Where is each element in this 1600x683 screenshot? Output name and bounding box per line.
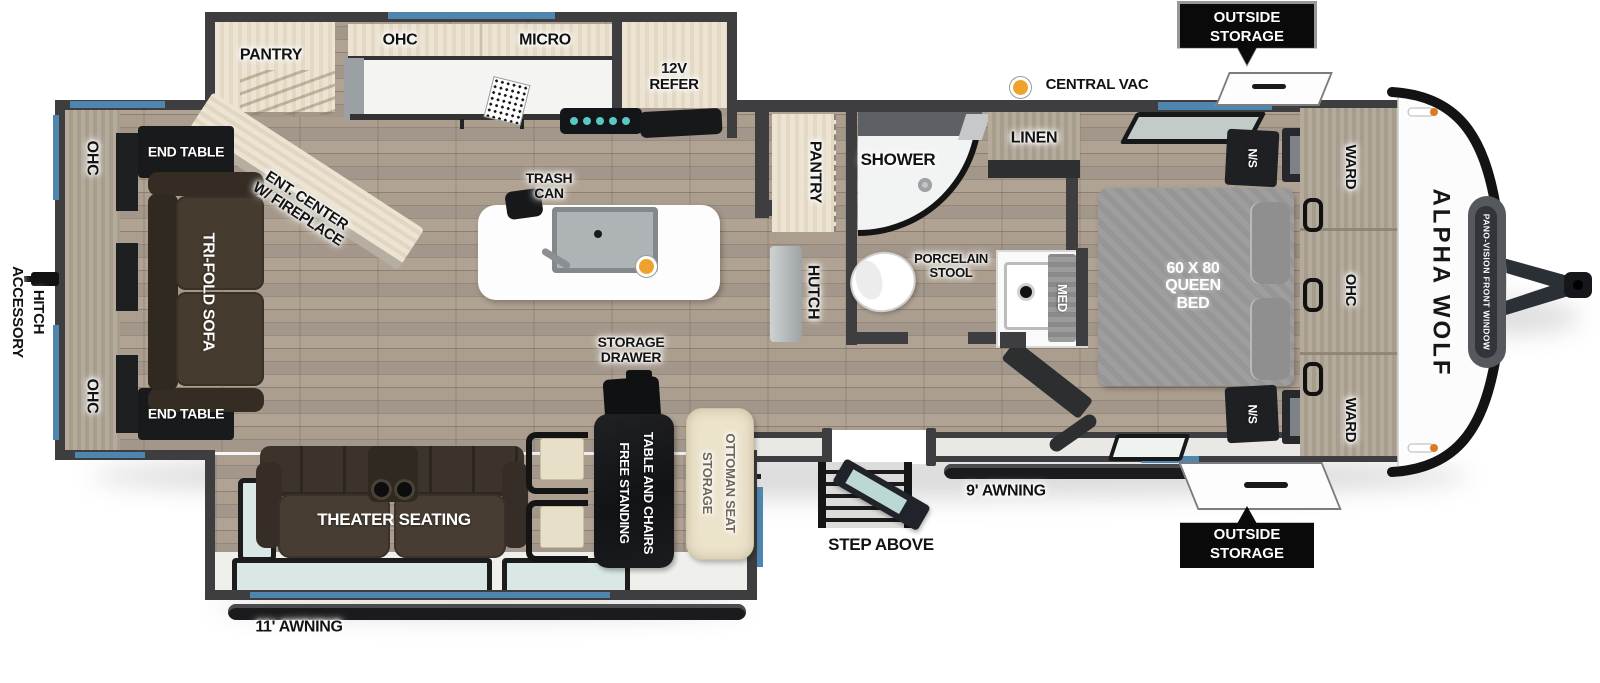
label-hutch: HUTCH xyxy=(804,265,821,320)
label-refer-line1: 12V xyxy=(649,61,698,77)
outside-storage-door-rear-handle xyxy=(1244,482,1288,488)
label-end-table-upper: END TABLE xyxy=(148,144,224,159)
cabinet-seam xyxy=(480,24,482,58)
cupholder-2 xyxy=(397,482,412,497)
outside-storage-badge-front: OUTSIDE STORAGE xyxy=(1180,4,1314,65)
marker-light-bottom-lens xyxy=(1430,444,1438,452)
island-sink-drain xyxy=(594,230,602,238)
label-ward-upper: WARD xyxy=(1342,145,1358,190)
outside-storage-badge-rear: OUTSIDE STORAGE xyxy=(1180,506,1314,568)
badge-rear-line2: STORAGE xyxy=(1180,545,1314,564)
label-bed-line2: QUEEN xyxy=(1165,277,1220,294)
central-vac-marker xyxy=(1010,77,1031,98)
outside-storage-door-front-handle xyxy=(1252,84,1286,89)
label-kitchen-pantry: PANTRY xyxy=(240,46,302,63)
cupholder-1 xyxy=(374,482,389,497)
label-shower: SHOWER xyxy=(861,151,936,169)
rear-cabinet-recess-2 xyxy=(116,243,138,311)
dinette-chair-1-seat xyxy=(540,438,584,480)
ward-handle-2 xyxy=(1303,278,1323,312)
sofa-armrest-top xyxy=(148,172,264,196)
burner-1 xyxy=(570,117,578,125)
label-kitchen-ohc: OHC xyxy=(383,31,418,48)
storage-ottoman xyxy=(686,408,754,560)
bedroom-door-jamb xyxy=(1000,332,1026,348)
burner-4 xyxy=(609,117,617,125)
rear-wall-window xyxy=(53,115,59,200)
label-theater-seating: THEATER SEATING xyxy=(317,511,471,529)
label-refer-line2: REFER xyxy=(649,77,698,93)
dinette-chair-2-seat xyxy=(540,506,584,548)
label-ns-upper: N/S xyxy=(1246,148,1259,167)
bottom-wall-left-window xyxy=(75,452,145,458)
label-accessory-hitch-2: HITCH xyxy=(30,290,46,334)
label-refer: 12V REFER xyxy=(649,61,698,93)
storage-drawer-tab xyxy=(626,370,652,380)
label-central-vac: CENTRAL VAC xyxy=(1046,77,1149,93)
label-ottoman-line1: STORAGE xyxy=(700,452,714,514)
label-hall-pantry: PANTRY xyxy=(806,141,823,203)
label-ottoman-line2: OTTOMAN SEAT xyxy=(723,433,737,532)
label-linen: LINEN xyxy=(1011,129,1058,146)
bath-bottom-wall-left xyxy=(846,332,908,344)
rear-wall-window-2 xyxy=(53,325,59,440)
linen-shelf-shadow xyxy=(988,160,1080,178)
badge-rear-line1: OUTSIDE xyxy=(1180,526,1314,545)
sofa-cushion-2 xyxy=(176,292,264,386)
burner-2 xyxy=(583,117,591,125)
label-trash-can: TRASH CAN xyxy=(526,171,573,201)
hutch xyxy=(770,246,802,342)
theater-slide-left-wall xyxy=(205,450,215,600)
hitch-a-frame xyxy=(1496,256,1572,318)
bottom-wall-window xyxy=(1108,434,1191,461)
label-front-window: PANO-VISION FRONT WINDOW xyxy=(1482,214,1491,350)
label-queen-bed: 60 X 80 QUEEN BED xyxy=(1165,260,1220,312)
label-awning-9: 9' AWNING xyxy=(966,482,1046,499)
theater-seating xyxy=(256,446,528,564)
dinette-table xyxy=(594,414,674,568)
bed-pillow-1 xyxy=(1250,202,1290,284)
kitchen-counter-side-panel xyxy=(344,58,364,120)
shower-drain xyxy=(918,178,932,192)
label-trash-line1: TRASH xyxy=(526,171,573,186)
burner-5 xyxy=(622,117,630,125)
counter-hook-1 xyxy=(460,119,464,129)
label-storage-drawer-line1: STORAGE xyxy=(598,335,665,350)
label-bed-line3: BED xyxy=(1165,295,1220,312)
label-step-above: STEP ABOVE xyxy=(828,536,934,554)
rear-cabinet-recess-3 xyxy=(116,355,138,433)
label-awning-11: 11' AWNING xyxy=(255,618,342,635)
hall-pantry xyxy=(772,114,836,232)
outside-storage-door-front xyxy=(1215,72,1333,106)
label-stool-line2: STOOL xyxy=(914,266,988,280)
accessory-hitch xyxy=(31,272,59,286)
label-ohc-rear-lower: OHC xyxy=(83,379,100,414)
refer-mat xyxy=(639,108,722,138)
bed-pillow-2 xyxy=(1250,298,1290,380)
kitchen-slide-window xyxy=(388,12,555,19)
badge-front-line1: OUTSIDE xyxy=(1180,9,1314,28)
label-storage-drawer: STORAGE DRAWER xyxy=(598,335,665,365)
label-med: MED xyxy=(1055,284,1069,312)
door-post-right xyxy=(926,428,936,466)
sofa-back xyxy=(148,194,178,390)
ward-handle-3 xyxy=(1303,362,1323,396)
label-ns-lower: N/S xyxy=(1246,404,1259,423)
badge-front-line2: STORAGE xyxy=(1180,28,1314,47)
vanity-faucet xyxy=(1020,286,1032,298)
refer-divider-wall xyxy=(612,22,622,108)
theater-slide-bottom-window xyxy=(250,592,610,598)
label-brand: ALPHA WOLF xyxy=(1428,188,1453,377)
label-micro: MICRO xyxy=(519,31,571,48)
label-table-line2: TABLE AND CHAIRS xyxy=(641,432,655,554)
label-table-line1: FREE STANDING xyxy=(617,442,631,543)
bath-left-wall xyxy=(846,110,857,345)
floorplan-canvas: OUTSIDE STORAGE OUTSIDE STORAGE ACCESSOR… xyxy=(0,0,1600,683)
sofa-cushion-1 xyxy=(176,196,264,290)
hitch-coupler-pin xyxy=(1573,280,1583,290)
burner-3 xyxy=(596,117,604,125)
label-storage-drawer-line2: DRAWER xyxy=(598,350,665,365)
kitchen-slide-right-wall xyxy=(727,12,737,138)
central-vac-port-island xyxy=(636,256,657,277)
top-wall-left-window xyxy=(70,101,165,108)
marker-light-top-lens xyxy=(1430,108,1438,116)
label-trash-line2: CAN xyxy=(526,186,573,201)
shower xyxy=(858,112,990,242)
label-stool-line1: PORCELAIN xyxy=(914,252,988,266)
label-porcelain-stool: PORCELAIN STOOL xyxy=(914,252,988,280)
label-end-table-lower: END TABLE xyxy=(148,406,224,421)
kitchen-pantry-shelves xyxy=(240,70,335,115)
ward-handle-1 xyxy=(1303,198,1323,232)
label-ward-lower: WARD xyxy=(1342,398,1358,443)
steps-rail-left xyxy=(818,462,826,528)
step-rung-5 xyxy=(826,518,904,522)
rear-cabinet-recess-1 xyxy=(116,133,138,211)
label-accessory-hitch-1: ACCESSORY xyxy=(9,266,25,358)
label-bed-line1: 60 X 80 xyxy=(1165,260,1220,277)
vanity-back-wall xyxy=(1076,248,1088,346)
door-post-left xyxy=(822,428,832,466)
label-tri-fold-sofa: TRI-FOLD SOFA xyxy=(199,233,216,352)
label-ohc-bedroom: OHC xyxy=(1342,274,1358,306)
theater-slide-right-window xyxy=(757,487,763,567)
label-ohc-rear-upper: OHC xyxy=(83,141,100,176)
